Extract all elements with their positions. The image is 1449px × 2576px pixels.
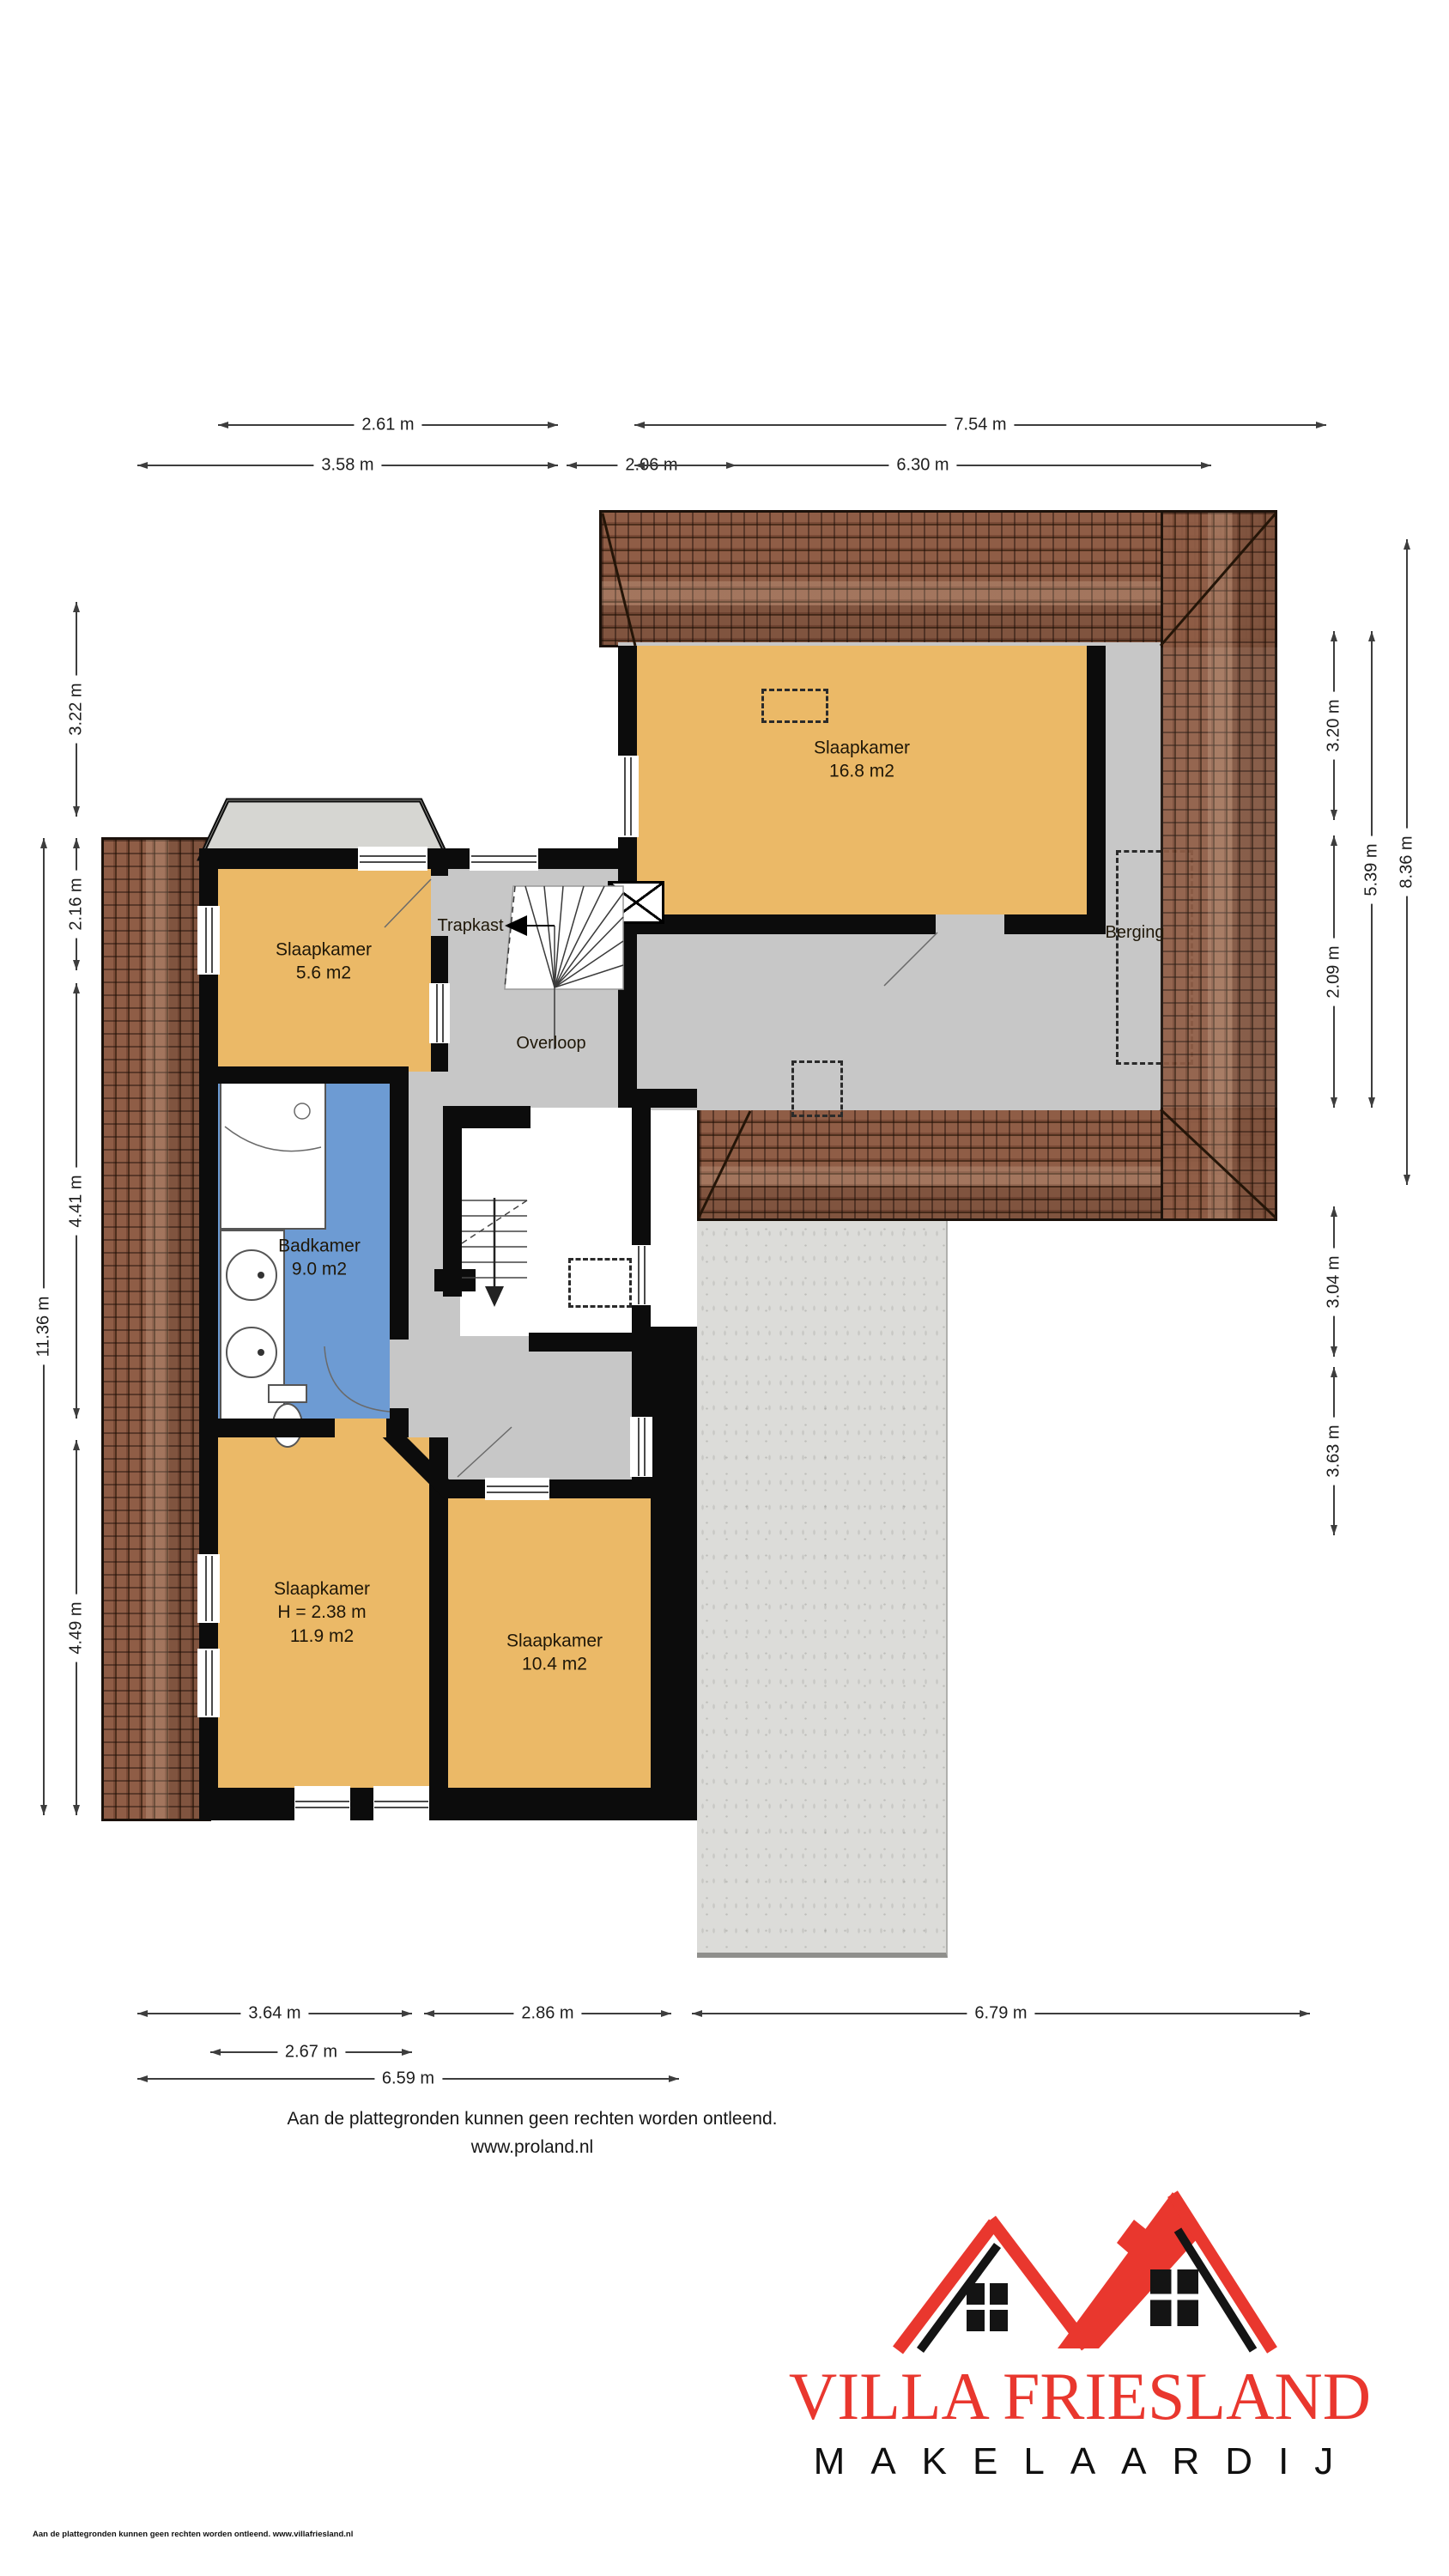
window bbox=[429, 983, 450, 1043]
wall bbox=[434, 1269, 476, 1291]
window bbox=[358, 847, 427, 871]
shower bbox=[220, 1075, 326, 1230]
wall bbox=[618, 646, 637, 1108]
dimension-left: 3.22 m bbox=[76, 602, 77, 817]
wall bbox=[651, 1327, 697, 1820]
window bbox=[197, 906, 220, 975]
window bbox=[373, 1786, 429, 1822]
dimension-bottom: 2.86 m bbox=[424, 2013, 671, 2014]
dimension-bottom: 6.79 m bbox=[692, 2013, 1310, 2014]
dashed-opening bbox=[568, 1258, 632, 1308]
wall bbox=[1087, 646, 1106, 934]
door-gap bbox=[936, 914, 1004, 934]
dashed-opening bbox=[761, 689, 828, 723]
dimension-left: 2.16 m bbox=[76, 838, 77, 970]
window bbox=[197, 1649, 220, 1717]
dimension-left: 4.41 m bbox=[76, 983, 77, 1419]
flat-roof-concrete bbox=[697, 1221, 948, 1958]
dimension-right: 3.20 m bbox=[1333, 631, 1335, 820]
website-link: www.proland.nl bbox=[146, 2134, 919, 2162]
house-roofs-icon bbox=[865, 2160, 1294, 2361]
room-label-overloop: Overloop bbox=[516, 1032, 585, 1054]
room-label-berging: Berging bbox=[1106, 921, 1165, 944]
dimension-right: 5.39 m bbox=[1371, 631, 1373, 1108]
door-gap bbox=[335, 1419, 386, 1437]
logo-subtitle: MAKELAARDIJ bbox=[728, 2440, 1432, 2483]
dimension-right: 3.63 m bbox=[1333, 1367, 1335, 1535]
washbasin-icon bbox=[226, 1249, 277, 1301]
roof-strip-left bbox=[101, 837, 211, 1821]
dimension-top: 6.30 m bbox=[634, 465, 1211, 466]
window bbox=[294, 1786, 350, 1822]
wall bbox=[618, 1089, 697, 1108]
toilet-tank bbox=[268, 1384, 307, 1403]
roof-band-right bbox=[1161, 510, 1277, 1221]
room-label-badkamer: Badkamer 9.0 m2 bbox=[278, 1235, 361, 1282]
wall bbox=[443, 1106, 462, 1297]
floorplan-canvas: Slaapkamer 16.8 m2 Slaapkamer 5.6 m2 Tra… bbox=[0, 0, 1449, 2576]
dimension-top: 3.58 m bbox=[137, 465, 558, 466]
dimension-right: 8.36 m bbox=[1406, 539, 1408, 1185]
dimension-right: 3.04 m bbox=[1333, 1206, 1335, 1357]
dimension-bottom: 3.64 m bbox=[137, 2013, 412, 2014]
dimension-top: 7.54 m bbox=[634, 424, 1326, 426]
dimension-left: 11.36 m bbox=[43, 838, 45, 1815]
faucet-dot bbox=[258, 1349, 264, 1356]
wall bbox=[199, 1066, 409, 1084]
room-label-slaapkamer-links: Slaapkamer H = 2.38 m 11.9 m2 bbox=[274, 1577, 370, 1648]
window bbox=[485, 1478, 549, 1500]
dimension-left: 4.49 m bbox=[76, 1440, 77, 1815]
room-label-trapkast: Trapkast bbox=[437, 914, 503, 937]
room-label-slaapkamer-midden: Slaapkamer 10.4 m2 bbox=[506, 1630, 603, 1677]
disclaimer-text: Aan de plattegronden kunnen geen rechten… bbox=[146, 2105, 919, 2161]
shaft-x-box bbox=[608, 881, 664, 924]
wall bbox=[199, 1788, 697, 1820]
door-gap bbox=[390, 1340, 409, 1408]
dimension-bottom: 2.67 m bbox=[210, 2051, 412, 2053]
washbasin-icon bbox=[226, 1327, 277, 1378]
dimension-top: 2.61 m bbox=[218, 424, 558, 426]
fine-print-text: Aan de plattegronden kunnen geen rechten… bbox=[33, 2530, 353, 2539]
room-label-slaapkamer-groot: Slaapkamer 16.8 m2 bbox=[814, 737, 910, 784]
window bbox=[197, 1554, 220, 1623]
window bbox=[616, 756, 639, 837]
wall bbox=[637, 914, 1087, 934]
wall bbox=[529, 1333, 651, 1352]
room-label-slaapkamer-klein: Slaapkamer 5.6 m2 bbox=[276, 939, 372, 986]
dashed-opening bbox=[791, 1060, 843, 1117]
window bbox=[630, 1245, 652, 1305]
dimension-right: 2.09 m bbox=[1333, 835, 1335, 1108]
brand-logo: VILLA FRIESLAND MAKELAARDIJ bbox=[728, 2160, 1432, 2483]
dimension-bottom: 6.59 m bbox=[137, 2078, 679, 2080]
window bbox=[470, 847, 538, 871]
window bbox=[630, 1417, 652, 1477]
faucet-dot bbox=[258, 1272, 264, 1279]
logo-title: VILLA FRIESLAND bbox=[728, 2363, 1432, 2430]
